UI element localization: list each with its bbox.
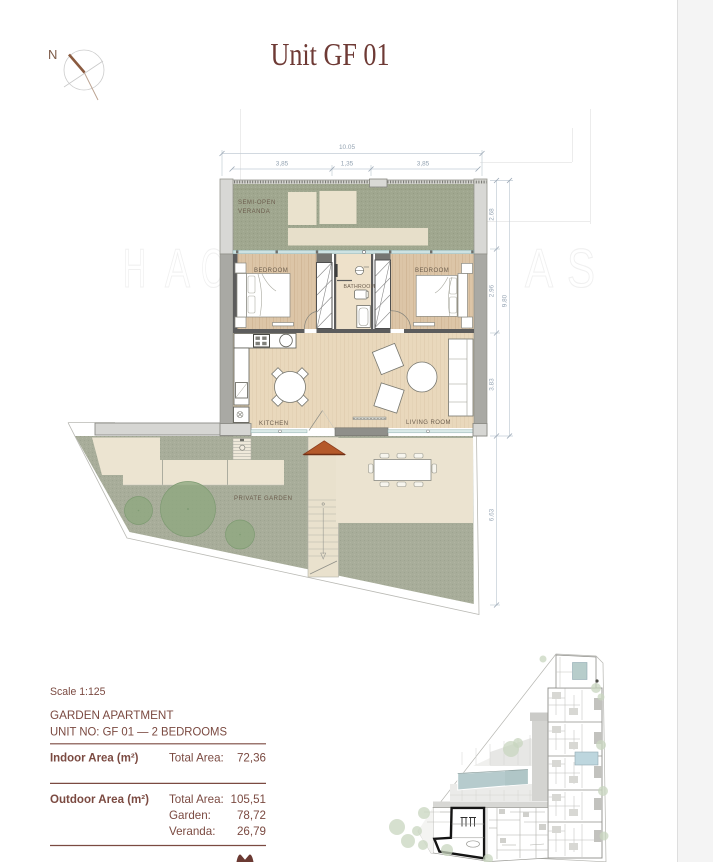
svg-text:UNIT NO: GF 01 — 2 BEDROOMS: UNIT NO: GF 01 — 2 BEDROOMS: [50, 725, 227, 739]
svg-text:Scale 1:125: Scale 1:125: [50, 686, 106, 698]
svg-text:10.05: 10.05: [339, 144, 355, 151]
svg-text:Total Area:: Total Area:: [169, 793, 224, 806]
svg-text:Indoor Area (m²): Indoor Area (m²): [50, 752, 139, 765]
svg-text:Outdoor Area (m²): Outdoor Area (m²): [50, 793, 149, 806]
svg-text:S: S: [567, 237, 595, 299]
svg-text:GARDEN APARTMENT: GARDEN APARTMENT: [50, 708, 174, 722]
svg-text:3,85: 3,85: [417, 161, 430, 168]
svg-text:2.68: 2.68: [489, 208, 496, 221]
svg-text:26,79: 26,79: [237, 825, 266, 838]
svg-text:KITCHEN: KITCHEN: [259, 421, 289, 427]
svg-text:BEDROOM: BEDROOM: [415, 268, 449, 274]
svg-text:PRIVATE GARDEN: PRIVATE GARDEN: [234, 496, 292, 502]
svg-text:A: A: [525, 237, 553, 299]
svg-text:3,85: 3,85: [276, 161, 289, 168]
svg-text:BEDROOM: BEDROOM: [254, 268, 288, 274]
svg-text:105,51: 105,51: [231, 793, 266, 806]
svg-text:72,36: 72,36: [237, 752, 266, 765]
svg-text:78,72: 78,72: [237, 809, 266, 822]
svg-text:LIVING ROOM: LIVING ROOM: [406, 420, 451, 426]
svg-text:Garden:: Garden:: [169, 809, 211, 822]
svg-text:N: N: [48, 47, 57, 62]
svg-text:3.83: 3.83: [489, 378, 496, 391]
svg-text:2.96: 2.96: [489, 284, 496, 297]
svg-text:A: A: [165, 237, 190, 299]
svg-text:VERANDA: VERANDA: [238, 209, 270, 215]
svg-text:BATHROOM: BATHROOM: [344, 284, 376, 290]
svg-text:Unit GF 01: Unit GF 01: [271, 36, 390, 72]
svg-text:Total Area:: Total Area:: [169, 752, 224, 765]
svg-text:9.80: 9.80: [502, 294, 509, 307]
svg-text:H: H: [123, 237, 146, 299]
svg-text:6.63: 6.63: [489, 508, 496, 521]
svg-text:1,35: 1,35: [341, 161, 354, 168]
svg-text:SEMI-OPEN: SEMI-OPEN: [238, 200, 276, 206]
svg-text:Veranda:: Veranda:: [169, 825, 215, 838]
